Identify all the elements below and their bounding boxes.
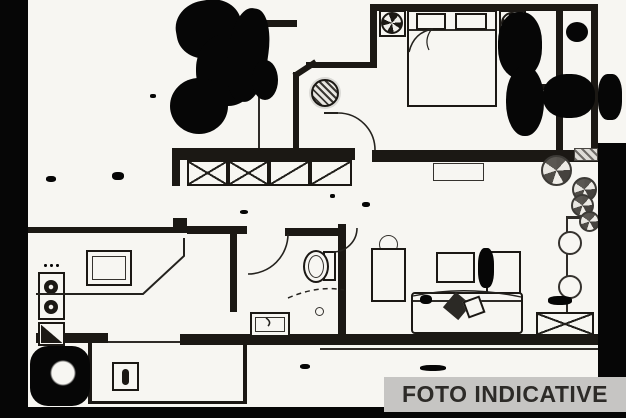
knob-dot	[50, 264, 53, 267]
scan-noise	[543, 74, 595, 118]
scan-noise	[566, 22, 588, 42]
scan-noise	[30, 346, 90, 406]
scan-noise	[362, 202, 370, 207]
door-swing-arc	[248, 234, 288, 274]
scan-noise	[170, 78, 228, 134]
shower-curtain-dashed	[288, 289, 344, 298]
scan-noise	[330, 194, 335, 198]
knob-dot	[44, 264, 47, 267]
scan-noise	[420, 365, 446, 371]
scan-noise	[240, 210, 248, 214]
left-border-strip	[0, 0, 28, 418]
scan-noise	[300, 364, 310, 369]
door-swing-arc	[333, 228, 357, 252]
scan-noise	[420, 295, 432, 304]
blanket-fold	[427, 30, 431, 50]
right-border-strip	[598, 143, 626, 385]
scan-noise	[478, 248, 494, 288]
scan-noise	[252, 60, 278, 100]
knob-dot	[56, 264, 59, 267]
scan-noise	[548, 296, 572, 305]
door-swing-arc	[338, 113, 375, 150]
faucet	[266, 318, 270, 326]
scan-noise	[112, 172, 124, 180]
scan-noise	[150, 94, 156, 98]
banner-label: FOTO INDICATIVE	[402, 381, 608, 408]
floor-plan: FOTO INDICATIVE	[0, 0, 626, 418]
foto-indicative-banner: FOTO INDICATIVE	[384, 377, 626, 412]
scan-noise	[46, 176, 56, 182]
scan-noise	[506, 66, 544, 136]
scan-noise	[598, 74, 622, 120]
